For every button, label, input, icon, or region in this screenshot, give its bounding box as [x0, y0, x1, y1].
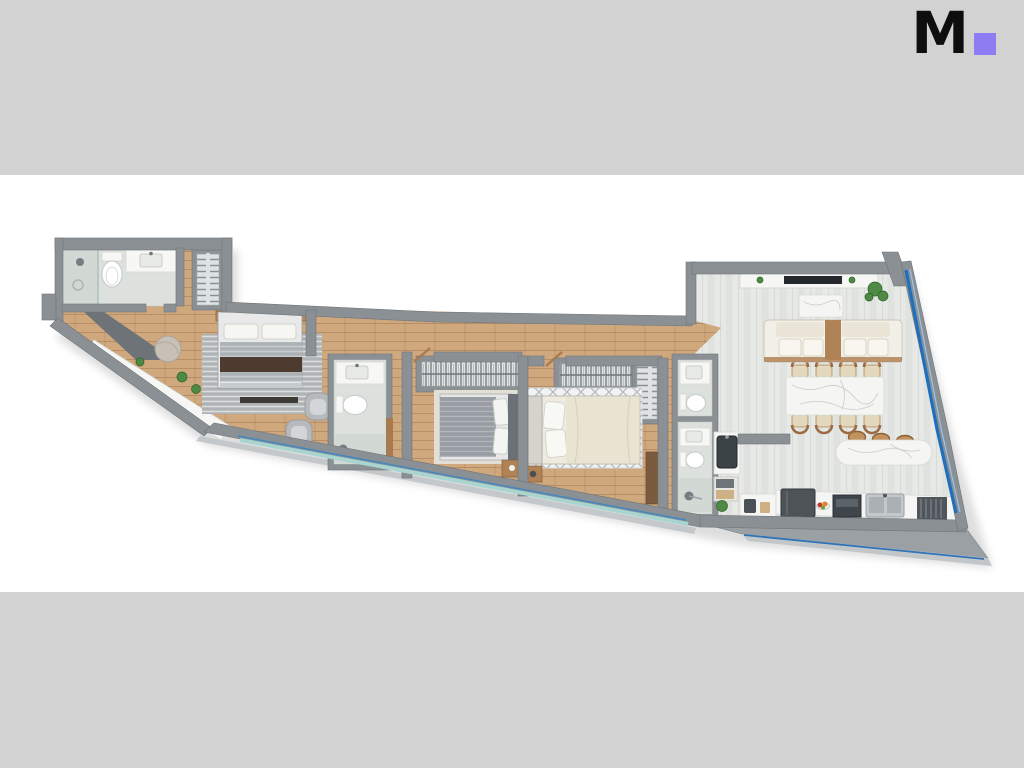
sink: [686, 431, 702, 442]
bathroom-divider-wall: [176, 248, 184, 306]
floor-plan-svg: [0, 0, 1024, 768]
shower: [678, 478, 712, 512]
shower-head-icon: [76, 258, 84, 266]
plant-icon: [136, 358, 144, 366]
island: [836, 440, 932, 465]
basket: [716, 479, 734, 488]
pillow: [543, 401, 566, 430]
toilet: [343, 396, 367, 415]
sink: [686, 366, 702, 379]
cushion: [844, 339, 866, 356]
floor-plan-rendering: [0, 0, 1024, 768]
toilet: [102, 261, 122, 287]
pillow: [262, 324, 296, 339]
bedroom-divider-wall: [518, 356, 528, 496]
basket: [716, 490, 734, 499]
sofa-wood-insert: [825, 320, 841, 360]
cushion: [779, 339, 801, 356]
coat-closet-rails: [197, 253, 219, 305]
cushion: [803, 339, 823, 356]
utility-sink: [717, 436, 737, 468]
headboard: [508, 394, 519, 460]
faucet-icon: [883, 494, 887, 498]
hall-bathrooms: [672, 354, 718, 520]
main-bathroom: [62, 250, 176, 306]
top-wall-left: [55, 238, 232, 250]
sink: [140, 254, 162, 267]
plant-icon: [192, 385, 201, 394]
headboard: [528, 396, 542, 464]
bedroom3-east-wall: [658, 358, 668, 510]
left-notch: [42, 294, 56, 320]
master-wall-stub: [306, 310, 316, 356]
plant-icon: [757, 277, 763, 283]
faucet-icon: [149, 252, 153, 256]
plant-icon: [849, 277, 855, 283]
toilet-tank: [680, 452, 686, 467]
faucet-icon: [725, 435, 729, 439]
cutting-board: [760, 502, 770, 513]
fridge: [781, 489, 815, 517]
toilet-tank: [336, 396, 343, 413]
pillow: [224, 324, 258, 339]
bed-throw: [220, 357, 302, 372]
pillow: [493, 398, 510, 425]
toilet: [687, 395, 706, 412]
bathroom-bottom-wall: [62, 304, 146, 312]
dresser: [646, 452, 659, 504]
coffee-table: [799, 295, 843, 317]
hall-bathroom: [678, 360, 712, 416]
small-appliance: [744, 499, 756, 513]
bedroom2-top-wall: [434, 352, 522, 362]
toilet-tank: [102, 252, 122, 261]
tv: [784, 276, 842, 284]
entry-right-wall: [222, 238, 232, 312]
pillow: [545, 429, 567, 458]
pillow: [493, 427, 509, 454]
living-top-wall: [692, 262, 904, 274]
dining-table: [786, 377, 884, 415]
foot-bench: [240, 397, 298, 403]
plant-icon: [717, 501, 728, 512]
bedroom3-top-wall: [566, 356, 662, 366]
cushion: [868, 339, 888, 356]
faucet-icon: [355, 364, 359, 368]
kitchen-wall-stub: [738, 434, 790, 444]
toilet-tank: [680, 394, 686, 410]
toilet: [686, 452, 704, 468]
shower-bathroom: [678, 422, 712, 514]
sofa: [764, 320, 902, 362]
plant-icon: [177, 372, 187, 382]
sink: [346, 366, 368, 379]
